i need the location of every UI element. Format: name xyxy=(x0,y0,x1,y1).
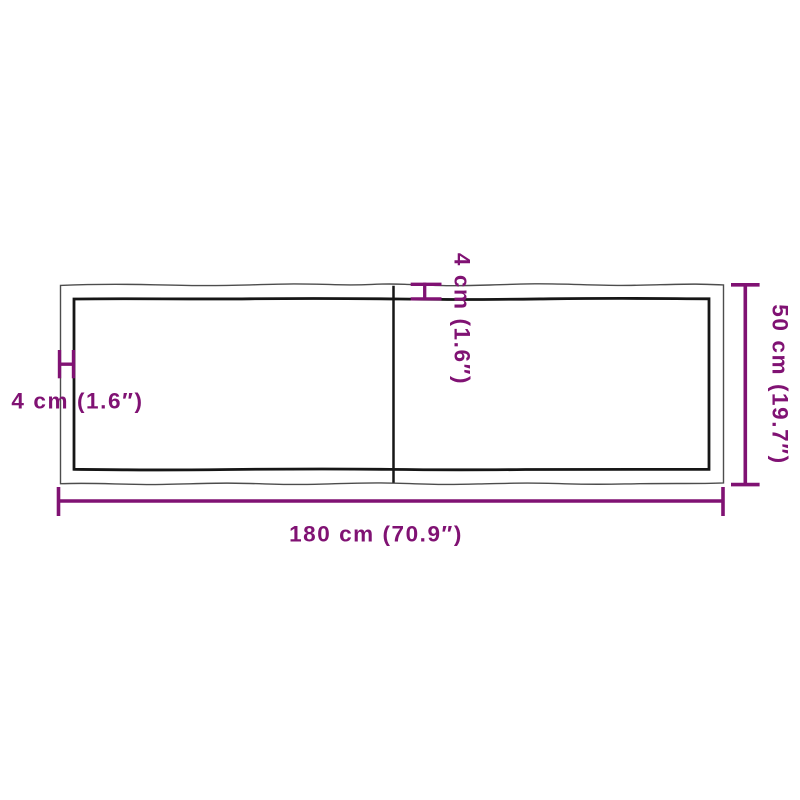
svg-text:4 cm (1.6″): 4 cm (1.6″) xyxy=(11,389,143,414)
svg-text:4 cm (1.6″): 4 cm (1.6″) xyxy=(450,253,475,385)
svg-text:180 cm (70.9″): 180 cm (70.9″) xyxy=(289,522,463,547)
svg-text:50 cm (19.7″): 50 cm (19.7″) xyxy=(768,304,793,464)
